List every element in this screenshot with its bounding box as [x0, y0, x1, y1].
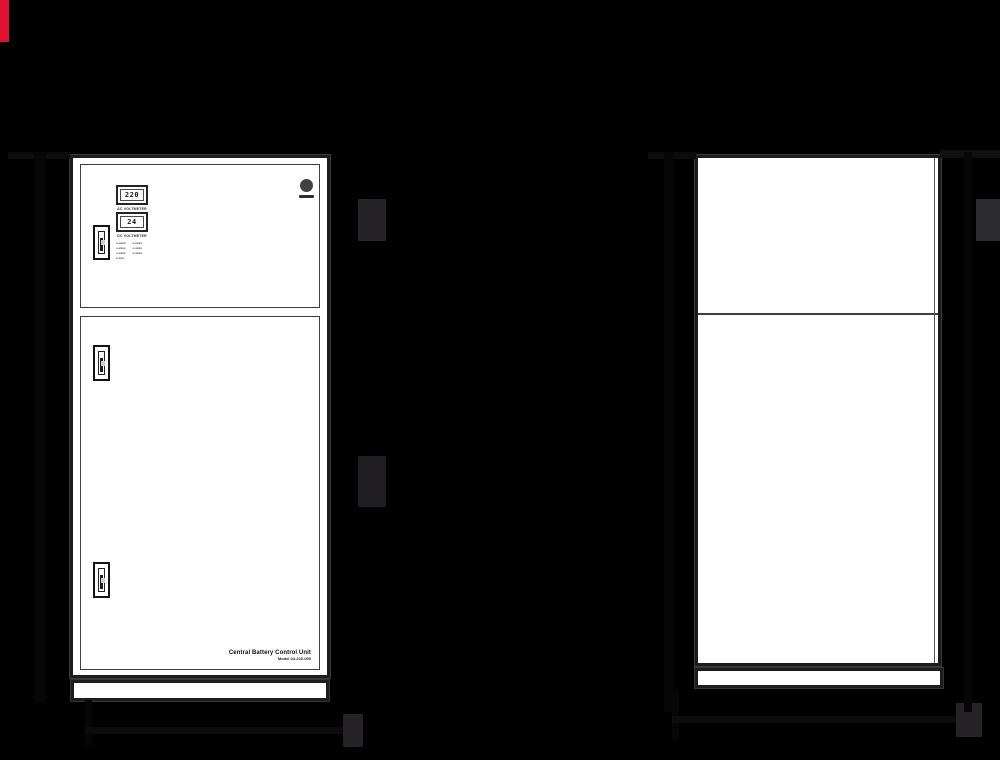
side-view-door-edge-line — [934, 158, 936, 663]
ac-voltmeter-display: 220 — [116, 185, 148, 205]
ac-voltmeter-label: AC VOLTMETER — [108, 207, 156, 211]
dimension-line-vertical — [34, 152, 46, 702]
dimension-extension-line — [672, 690, 679, 740]
side-view-cabinet — [695, 155, 941, 666]
side-view-divider-line — [698, 313, 938, 315]
lock-slot — [98, 351, 105, 375]
dimension-line-horizontal — [672, 716, 962, 723]
indicator-microtext: o-xxxx — [133, 251, 143, 256]
nameplate: Central Battery Control Unit Model 04-22… — [201, 650, 311, 661]
dimension-label-block — [976, 199, 1000, 241]
brand-logo-icon — [300, 179, 313, 192]
indicator-microtext: o-xxx — [116, 256, 124, 261]
door-lock-handle — [93, 562, 110, 598]
nameplate-model: Model 04-220-000 — [201, 656, 311, 661]
dc-voltmeter-label: DC VOLTMETER — [108, 234, 156, 238]
ac-voltmeter-value: 220 — [125, 191, 139, 199]
front-view-base — [71, 680, 329, 701]
door-lock-handle — [93, 225, 110, 260]
lock-slot — [98, 568, 105, 592]
accent-bar — [0, 0, 9, 42]
dimension-line-vertical — [664, 152, 674, 712]
meter-screen: 24 — [120, 216, 144, 228]
dimension-line-horizontal — [85, 727, 347, 734]
dimension-label-block — [358, 199, 386, 241]
front-view-cabinet: 220 AC VOLTMETER 24 DC VOLTMETER o-xxxx … — [70, 155, 330, 678]
indicator-legend: o-xxxx v-xxxx o-xxxx o-xxxx o-xxxx o-xxx… — [116, 241, 168, 261]
meter-screen: 220 — [120, 189, 144, 201]
dimension-label-block — [343, 714, 363, 747]
dimension-extension-line — [85, 700, 92, 745]
door-lock-handle — [93, 345, 110, 381]
logo-wordmark — [299, 195, 314, 198]
lock-slot — [98, 231, 105, 254]
side-view-base — [695, 668, 943, 688]
front-lower-door: Central Battery Control Unit Model 04-22… — [80, 316, 320, 670]
front-top-panel: 220 AC VOLTMETER 24 DC VOLTMETER o-xxxx … — [80, 164, 320, 308]
dc-voltmeter-display: 24 — [116, 212, 148, 232]
drawing-canvas: 220 AC VOLTMETER 24 DC VOLTMETER o-xxxx … — [0, 0, 1000, 760]
dimension-label-block — [358, 456, 386, 507]
dimension-line-vertical — [964, 152, 972, 712]
dc-voltmeter-value: 24 — [127, 218, 136, 226]
